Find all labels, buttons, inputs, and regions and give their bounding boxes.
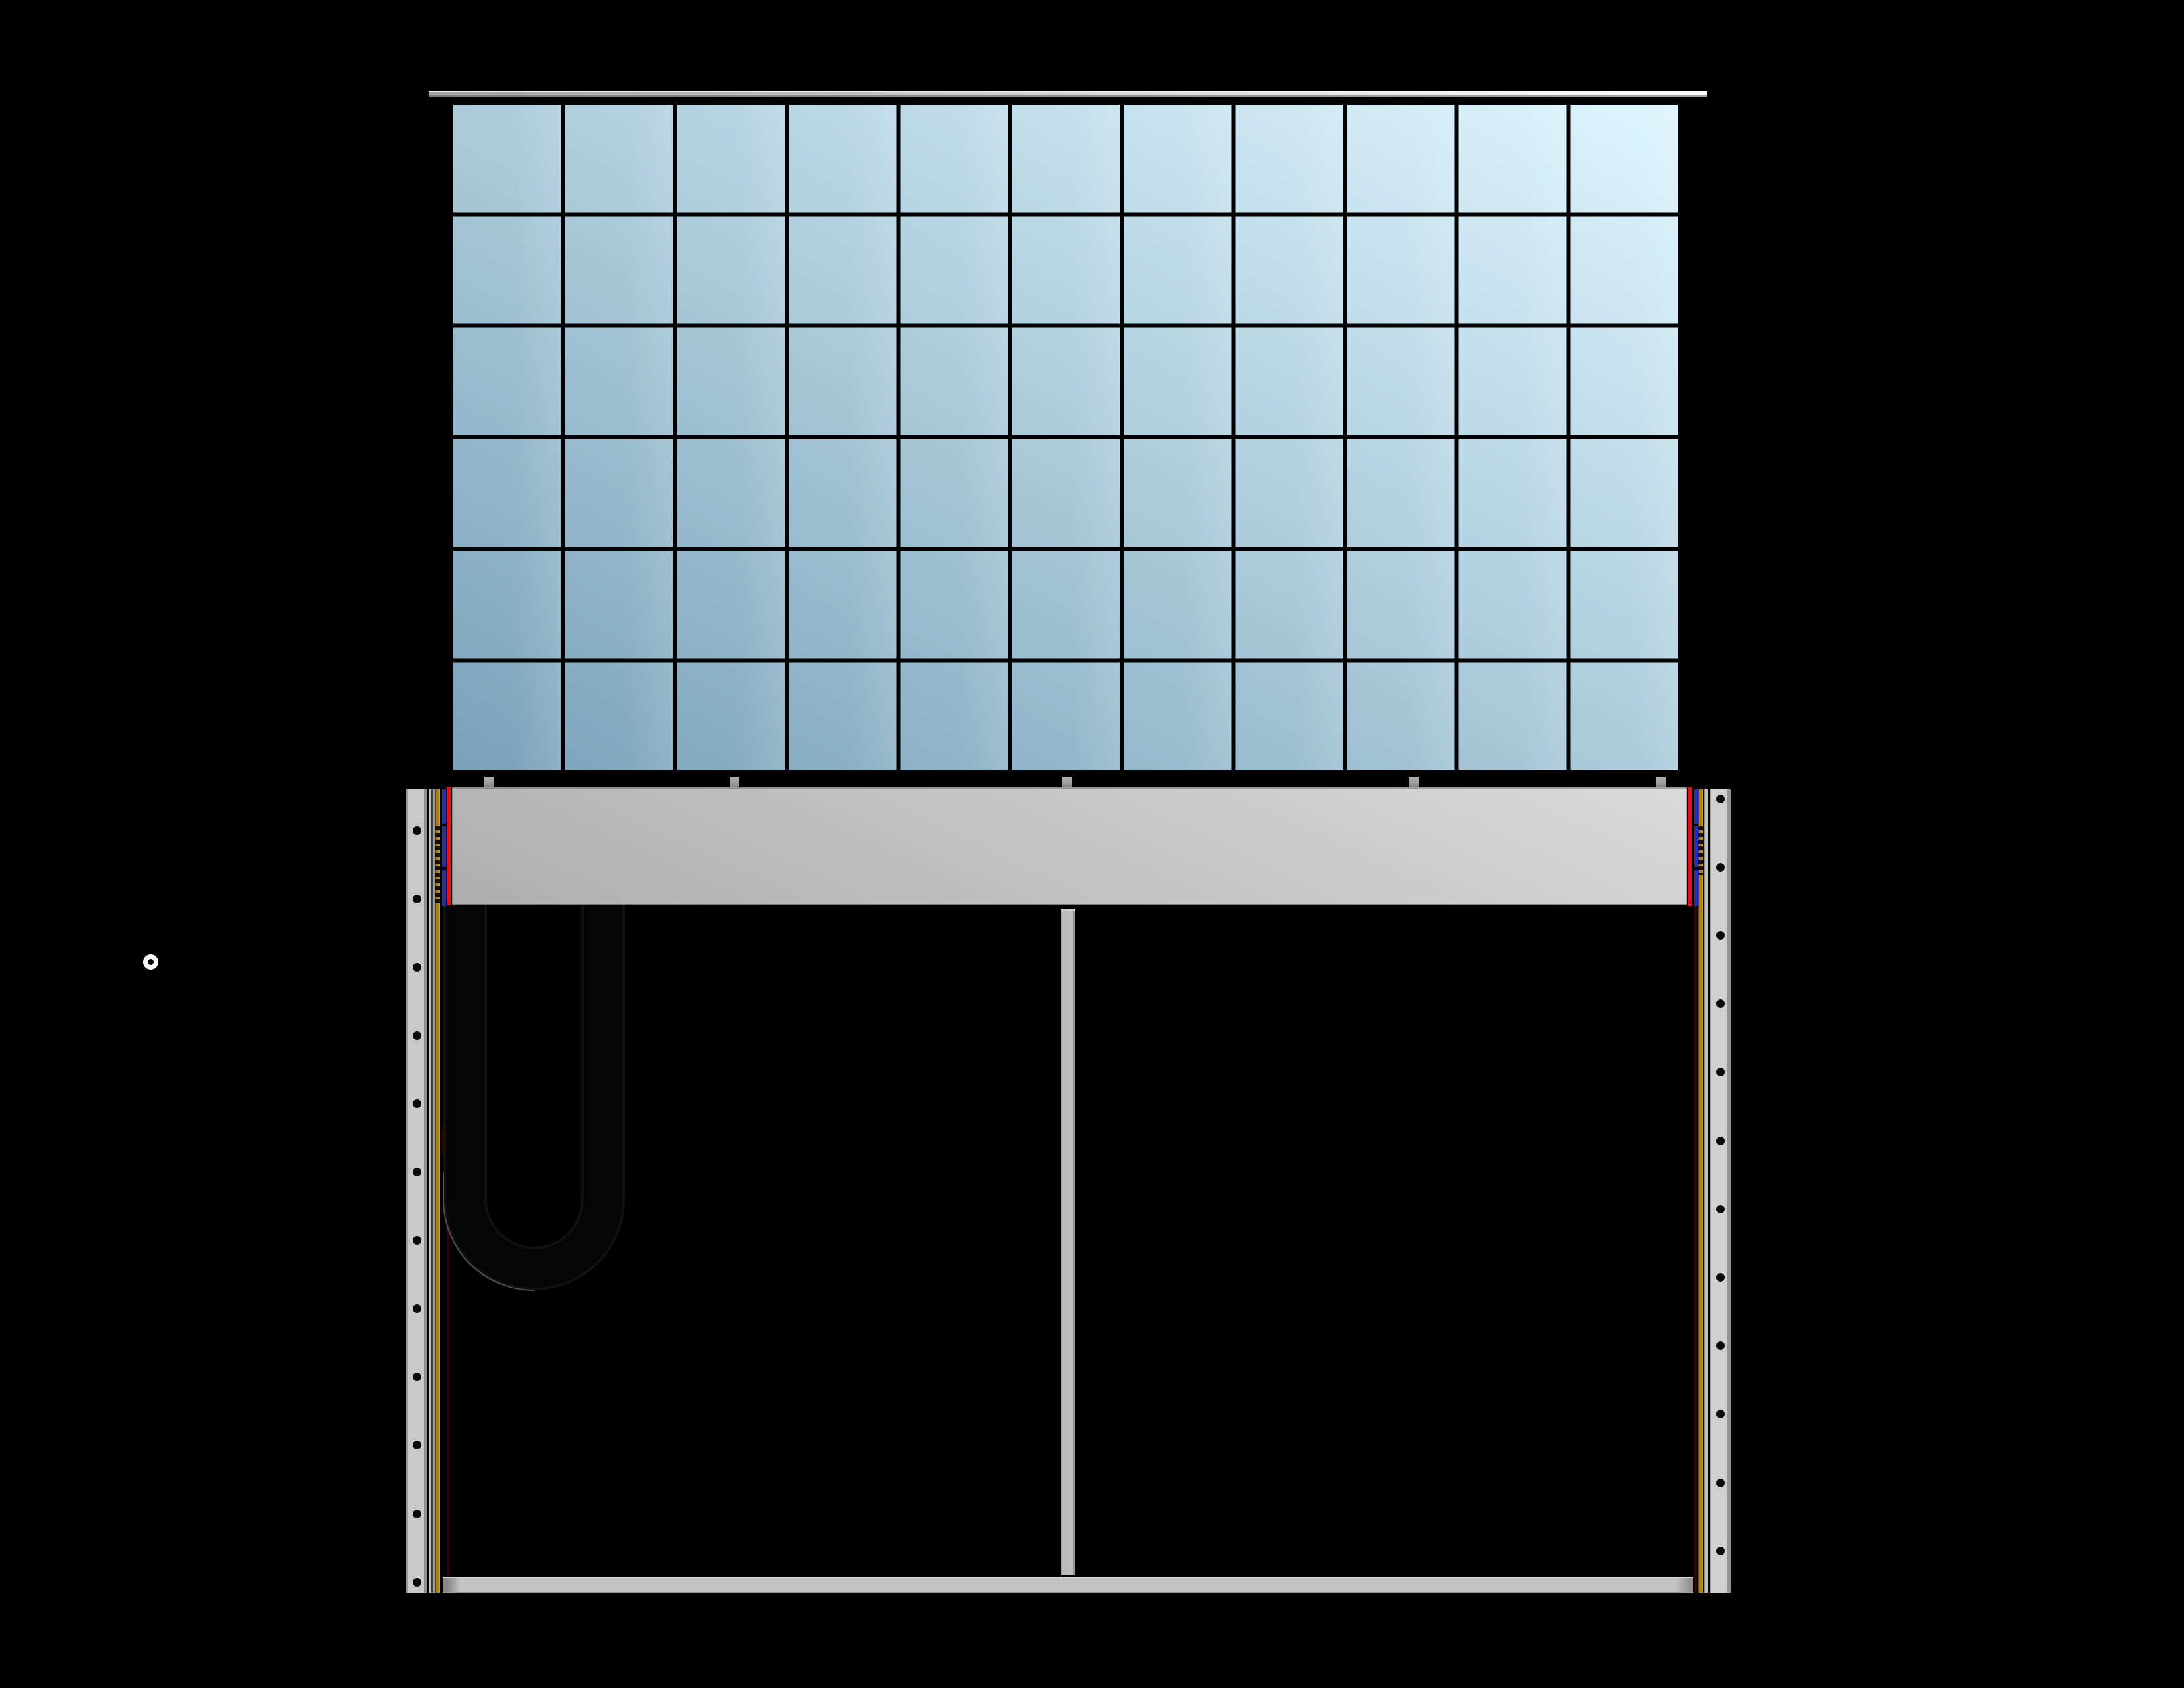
panel-mounting-clip xyxy=(1062,777,1072,787)
right-rail-bolt-hole xyxy=(1716,999,1725,1008)
right-rail-bolt-hole xyxy=(1716,1273,1725,1282)
left-rail-bolt-hole xyxy=(413,895,421,903)
right-rail-bolt-hole xyxy=(1716,1479,1725,1487)
left-rail-bolt-hole xyxy=(413,1373,421,1381)
right-rail-bolt-hole xyxy=(1716,1547,1725,1555)
right-rail-bolt-hole xyxy=(1716,931,1725,940)
panel-mounting-clip xyxy=(1409,777,1419,787)
left-rail-bolt-hole xyxy=(413,826,421,835)
left-rail-bolt-hole xyxy=(413,1236,421,1245)
right-blue-wire-segment xyxy=(1694,789,1698,824)
right-blue-wire-segment xyxy=(1694,870,1698,906)
left-rail-bolt-hole xyxy=(413,1441,421,1449)
right-blue-wire-segment xyxy=(1694,826,1698,867)
left-rail-bolt-hole xyxy=(413,1304,421,1313)
left-blue-wire-segment xyxy=(442,826,446,867)
panel-mounting-clip xyxy=(730,777,739,787)
left-rail-bolt-hole xyxy=(413,1168,421,1176)
left-rail-bolt-hole xyxy=(413,1099,421,1108)
cable-loop xyxy=(0,0,2184,1688)
left-rail-bolt-hole xyxy=(413,963,421,972)
left-rail-bolt-hole xyxy=(413,1578,421,1587)
left-rail-bolt-hole xyxy=(413,1510,421,1518)
right-rail-bolt-hole xyxy=(1716,1341,1725,1350)
left-blue-wire-segment xyxy=(442,870,446,906)
left-blue-wire-segment xyxy=(442,789,446,824)
right-rail-bolt-hole xyxy=(1716,795,1725,803)
right-rail-bolt-hole xyxy=(1716,1205,1725,1213)
right-rail-bolt-hole xyxy=(1716,1137,1725,1145)
panel-mounting-clip xyxy=(484,777,494,787)
marker-ring xyxy=(143,954,158,970)
right-rail-bolt-hole xyxy=(1716,1068,1725,1076)
left-rail-bolt-hole xyxy=(413,1031,421,1040)
right-rail-bolt-hole xyxy=(1716,1410,1725,1418)
render-viewport xyxy=(0,0,2184,1688)
panel-mounting-clip xyxy=(1656,777,1666,787)
right-rail-bolt-hole xyxy=(1716,863,1725,872)
